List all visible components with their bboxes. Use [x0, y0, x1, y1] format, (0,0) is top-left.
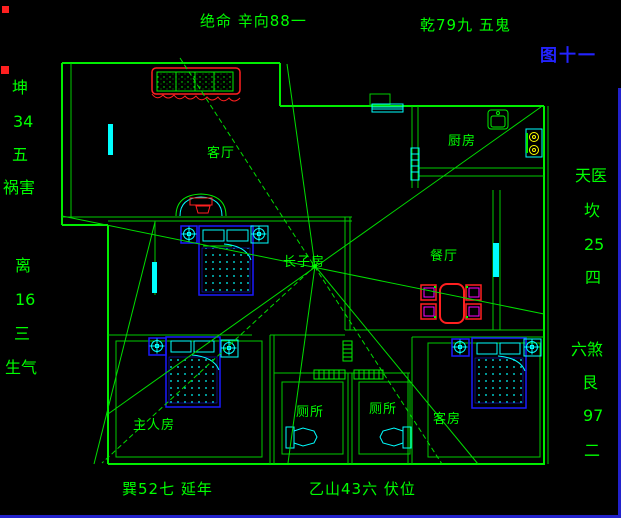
toilet-right-icon [380, 427, 411, 448]
label-jueming-facing: 绝命 辛向88一 [200, 14, 307, 29]
label-huohai: 祸害 [3, 180, 35, 196]
label-kan: 坎 [584, 203, 600, 219]
label-kan-four: 四 [585, 270, 601, 286]
room-label-master: 主人房 [133, 419, 175, 432]
grip-marker [2, 6, 9, 13]
label-kun-five: 五 [12, 147, 28, 163]
nightstand-master-right [221, 340, 238, 357]
dining-table-set [421, 284, 481, 323]
label-kun: 坤 [12, 80, 28, 96]
label-li-number: 16 [15, 292, 35, 308]
label-gen-two: 二 [584, 443, 600, 459]
nightstand-guest-left [452, 339, 469, 356]
label-li-three: 三 [14, 326, 30, 342]
window-dining-right [493, 243, 499, 277]
bed-eldest [199, 226, 253, 295]
label-gen-number: 97 [583, 408, 603, 424]
sink-icon [488, 110, 508, 129]
label-gen: 艮 [582, 375, 598, 391]
tv-cabinet [176, 194, 226, 216]
figure-number: 图十一 [540, 48, 597, 65]
stove-icon [526, 129, 542, 157]
room-label-guest: 客房 [433, 413, 461, 426]
label-kan-number: 25 [584, 237, 604, 253]
room-label-eldest: 长子房 [283, 256, 325, 269]
planter-box [152, 68, 240, 101]
cad-floorplan-canvas[interactable]: 绝命 辛向88一 乾79九 五鬼 图十一 坤 34 五 祸害 离 16 三 生气… [0, 0, 621, 518]
label-shengqi: 生气 [5, 360, 37, 376]
room-label-living: 客厅 [207, 147, 235, 160]
window-toilet-right-hatched [354, 370, 383, 379]
door-corridor-hatched [343, 341, 352, 361]
grip-marker [1, 66, 9, 74]
label-xun-yannian: 巽52七 延年 [122, 482, 213, 497]
room-label-toilet-left: 厕所 [296, 406, 324, 419]
label-liusha: 六煞 [571, 342, 603, 358]
label-kun-number: 34 [13, 114, 33, 130]
room-label-dining: 餐厅 [430, 250, 458, 263]
bed-guest [472, 338, 526, 408]
label-qian-wugui: 乾79九 五鬼 [420, 18, 511, 33]
label-tianyi: 天医 [575, 168, 607, 184]
room-label-toilet-right: 厕所 [369, 403, 397, 416]
window-living-left [108, 124, 113, 155]
window-toilet-left-hatched [314, 370, 345, 379]
label-li: 离 [15, 258, 31, 274]
room-label-kitchen: 厨房 [448, 135, 476, 148]
dining-chairs [421, 285, 481, 319]
window-eldest-left [152, 262, 157, 293]
label-yishan-fuwei: 乙山43六 伏位 [309, 482, 416, 497]
